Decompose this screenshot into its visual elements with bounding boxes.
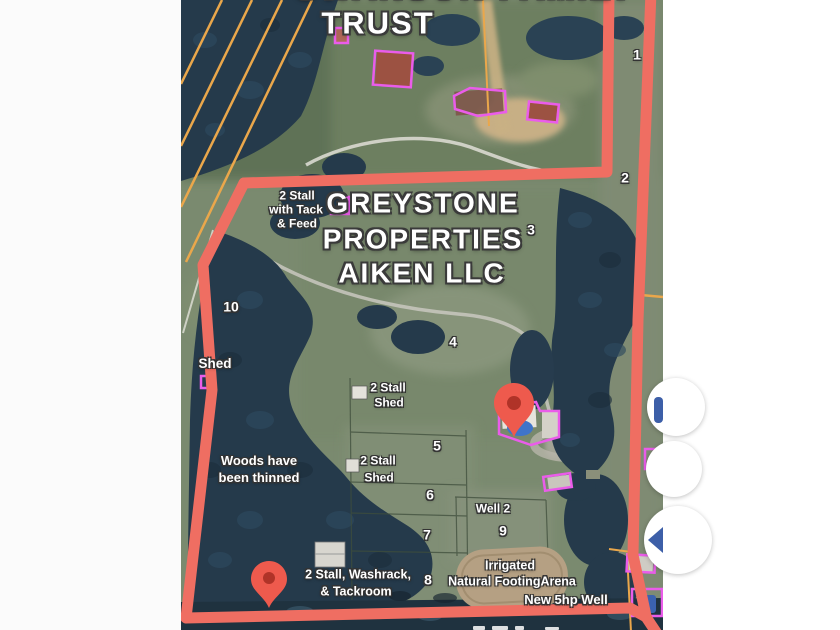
parcel-number-6: 6 [426, 488, 434, 503]
label-trust: TRUST [321, 8, 434, 41]
label-arena-line1: Irrigated [485, 559, 535, 572]
parcel-number-9: 9 [499, 524, 507, 539]
label-greystone: GREYSTONE [326, 188, 519, 217]
label-2stall-shed-upper-line2: Shed [374, 397, 403, 410]
label-woods-line1: Woods have [221, 454, 297, 468]
map-graphics [181, 0, 663, 630]
label-aiken-llc: AIKEN LLC [338, 258, 505, 287]
parcel-number-5: 5 [433, 439, 441, 454]
label-2stall-tack-line1: 2 Stall [279, 190, 314, 203]
left-letterbox [0, 0, 182, 630]
parcel-number-3: 3 [527, 223, 535, 238]
label-2stall-shed-lower-line1: 2 Stall [360, 455, 395, 468]
label-2stall-tack-line3: & Feed [277, 218, 317, 231]
parcel-number-4: 4 [449, 335, 457, 350]
parcel-number-8: 8 [424, 573, 432, 588]
map-action-button-bottom[interactable] [644, 506, 712, 574]
label-well-2: Well 2 [476, 503, 510, 516]
label-woods-line2: been thinned [219, 471, 300, 485]
label-2stall-tack-line2: with Tack [269, 204, 323, 217]
map-action-button-middle[interactable] [646, 441, 702, 497]
label-washrack-line2: & Tackroom [320, 585, 391, 598]
label-2stall-shed-lower-line2: Shed [364, 472, 393, 485]
screenshot-frame: SWANSON FAMILY TRUST GREYSTONE PROPERTIE… [0, 0, 840, 630]
chevron-left-icon [648, 527, 663, 553]
map-action-button-top[interactable] [647, 378, 705, 436]
label-shed: Shed [198, 357, 231, 371]
parcel-number-2: 2 [621, 171, 629, 186]
parcel-number-1: 1 [633, 48, 641, 63]
label-washrack-line1: 2 Stall, Washrack, [305, 568, 411, 581]
label-arena-line2: Natural FootingArena [448, 575, 576, 588]
label-properties: PROPERTIES [323, 224, 523, 253]
label-top-partial-trust-name: SWANSON FAMILY [295, 0, 635, 5]
flag-icon [654, 397, 663, 423]
label-new-5hp-well: New 5hp Well [524, 593, 608, 607]
parcel-number-10: 10 [223, 300, 239, 315]
parcel-number-7: 7 [423, 528, 431, 543]
satellite-map-image[interactable]: SWANSON FAMILY TRUST GREYSTONE PROPERTIE… [181, 0, 663, 630]
label-2stall-shed-upper-line1: 2 Stall [370, 382, 405, 395]
